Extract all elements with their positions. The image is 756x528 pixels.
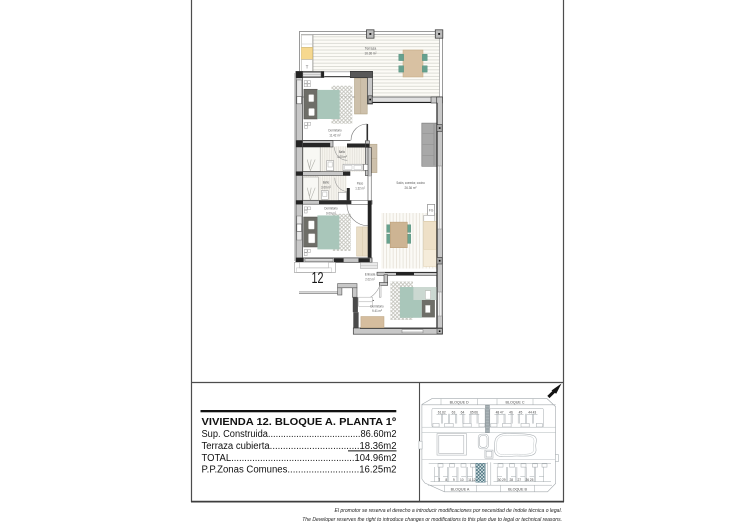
svg-text:9.09 m²: 9.09 m² [326,211,337,215]
svg-text:Paso: Paso [357,181,364,186]
svg-text:9: 9 [453,478,455,482]
svg-text:Dormitorio: Dormitorio [328,128,342,133]
svg-text:Baño: Baño [323,180,330,185]
svg-text:29: 29 [502,478,506,482]
svg-text:FG: FG [429,209,434,213]
svg-text:43: 43 [533,410,537,414]
svg-text:64: 64 [461,410,465,414]
svg-text:BLOQUE D: BLOQUE D [450,400,469,404]
svg-text:8: 8 [445,478,447,482]
svg-text:2.02 m²: 2.02 m² [365,277,375,281]
svg-text:Dormitorio: Dormitorio [370,303,384,308]
svg-text:T: T [306,65,309,70]
svg-text:63: 63 [452,410,456,414]
svg-text:Baño: Baño [339,149,346,154]
svg-text:44: 44 [528,410,532,414]
svg-text:BLOQUE B: BLOQUE B [508,488,527,492]
svg-text:46: 46 [509,410,513,414]
svg-text:48: 48 [496,410,500,414]
svg-text:BLOQUE A: BLOQUE A [451,488,470,492]
svg-text:Sup. Construida...............: Sup. Construida.........................… [202,429,397,440]
svg-text:7: 7 [438,478,440,482]
svg-text:26: 26 [525,478,529,482]
svg-text:25: 25 [530,478,534,482]
svg-text:TOTAL.........................: TOTAL...................................… [202,453,397,464]
svg-text:66: 66 [474,410,478,414]
svg-text:Salón, comedor, cocina: Salón, comedor, cocina [396,180,425,185]
svg-text:El promotor se reserva el dere: El promotor se reserva el derecho a intr… [334,508,562,514]
svg-text:P.P.Zonas Comunes.............: P.P.Zonas Comunes.......................… [202,465,397,476]
svg-text:Dormitorio: Dormitorio [324,206,338,211]
svg-text:Terraza: Terraza [365,46,377,51]
svg-text:12: 12 [472,478,476,482]
svg-text:26.36 m²: 26.36 m² [405,186,418,190]
svg-text:47: 47 [500,410,504,414]
svg-text:10: 10 [460,478,464,482]
svg-text:28: 28 [509,478,513,482]
svg-text:1.32 m²: 1.32 m² [355,187,365,191]
svg-text:30: 30 [498,478,502,482]
svg-text:45: 45 [519,410,523,414]
svg-text:Entrada: Entrada [365,272,376,277]
svg-text:12: 12 [312,270,324,287]
svg-text:The Developer reserves the rig: The Developer reserves the right to intr… [302,517,562,523]
svg-text:16.36 m²: 16.36 m² [365,51,378,55]
svg-text:62: 62 [442,410,446,414]
svg-text:Terraza cubierta..............: Terraza cubierta........................… [202,441,397,452]
svg-text:BLOQUE C: BLOQUE C [505,400,524,404]
svg-text:27: 27 [517,478,521,482]
svg-text:61: 61 [438,410,442,414]
svg-text:3.00 m²: 3.00 m² [321,185,332,189]
svg-text:VIVIENDA 12. BLOQUE A. PLANTA: VIVIENDA 12. BLOQUE A. PLANTA 1º [202,417,397,428]
svg-text:11.42 m²: 11.42 m² [329,134,341,138]
svg-text:9.41 m²: 9.41 m² [372,309,383,313]
